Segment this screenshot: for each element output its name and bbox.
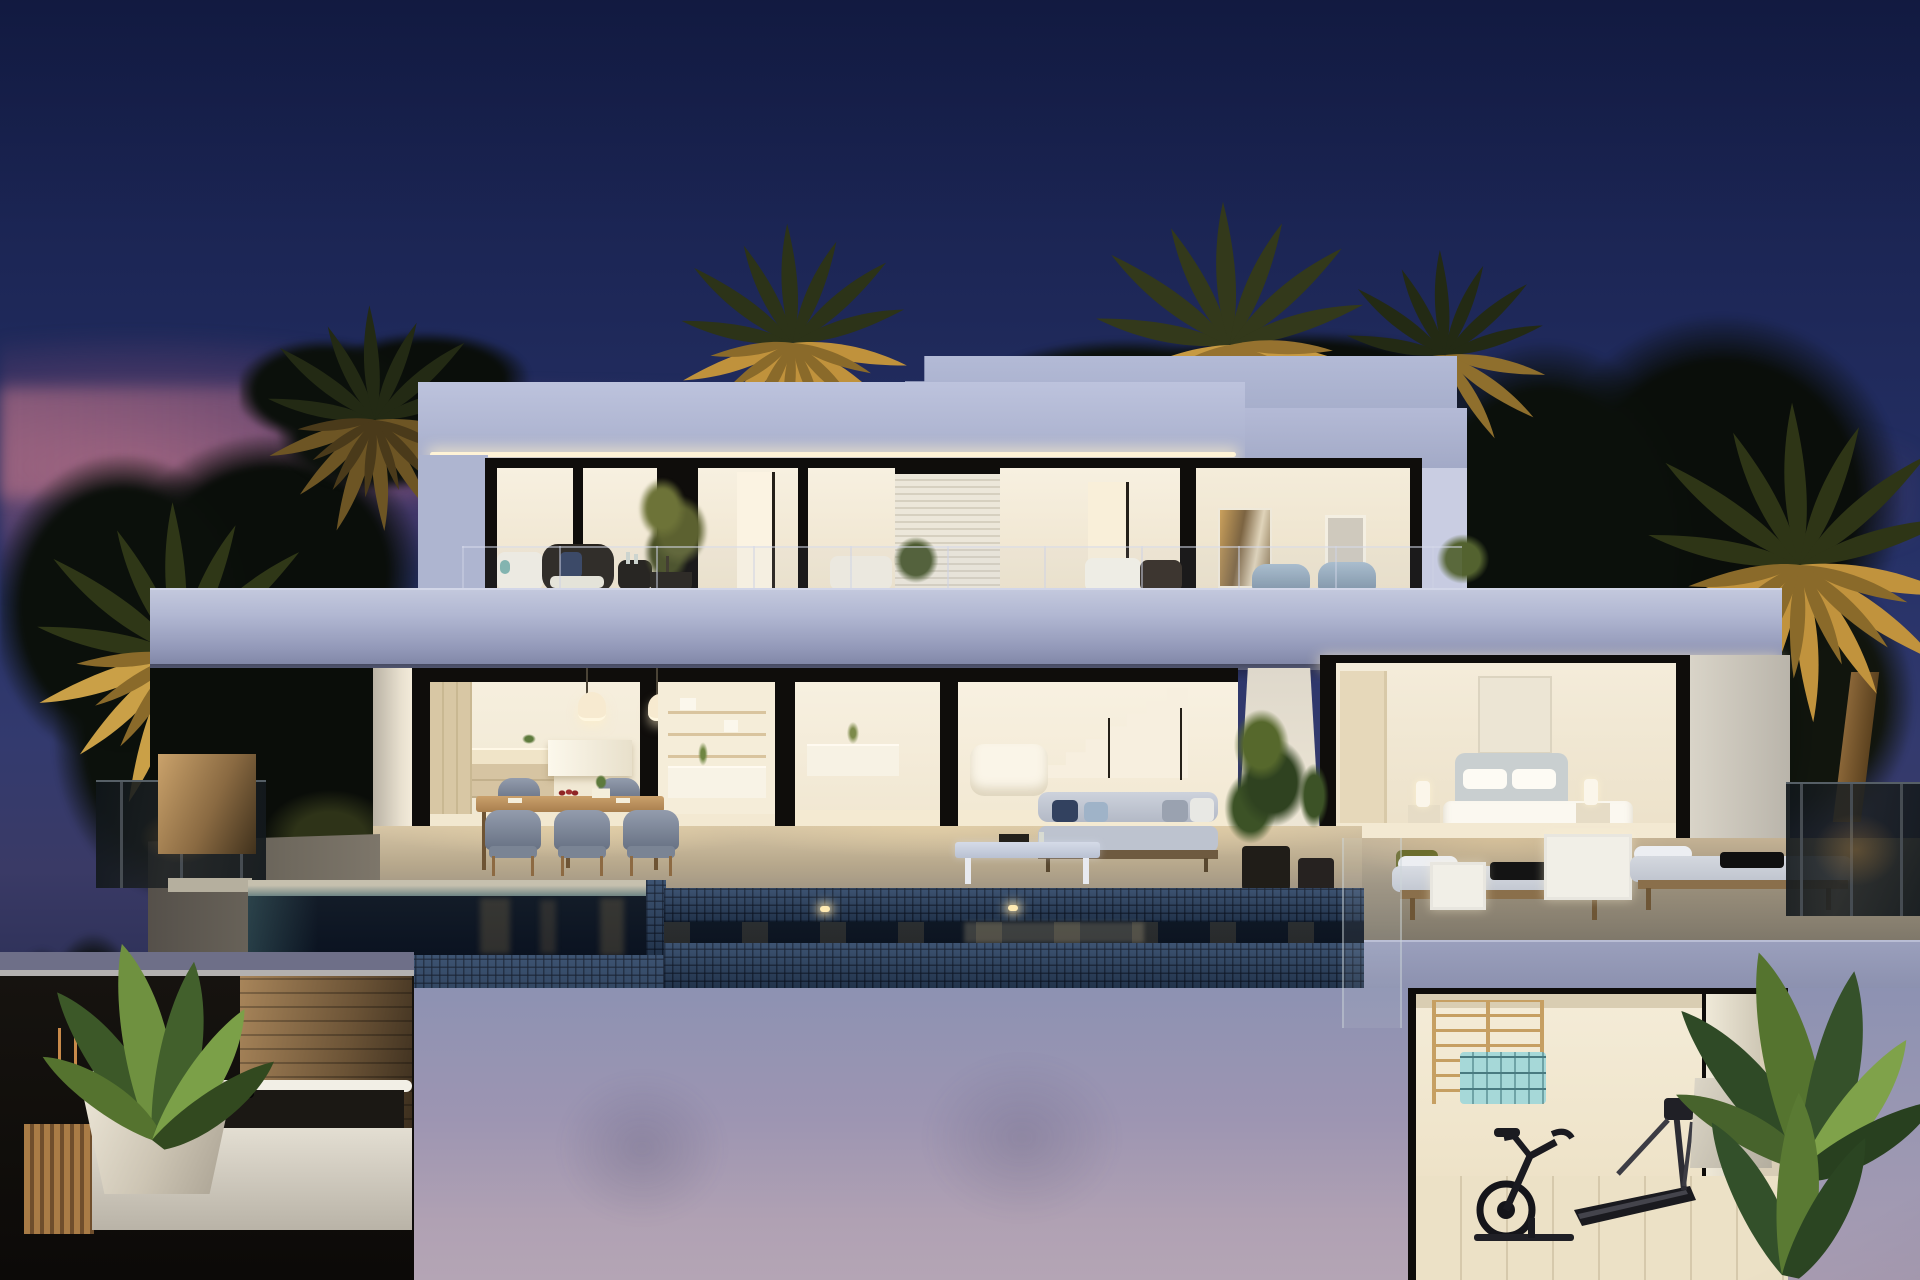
vase [847, 722, 859, 744]
roof-cove-light [430, 452, 1236, 457]
pool-light-1 [820, 906, 830, 912]
pool-step-edge [646, 880, 666, 958]
place-setting-2 [616, 798, 630, 803]
glass-panel-pool-end [1342, 838, 1402, 1028]
pendant-lamp-1 [578, 692, 606, 721]
table-plant-pot [592, 774, 610, 798]
villa-dusk-render [0, 0, 1920, 1280]
interior-white-sofa [970, 744, 1048, 796]
pool-infinity-edge [664, 943, 1364, 990]
fence-post [1800, 784, 1803, 916]
bed-pillow-left [1463, 769, 1507, 789]
rolled-yoga-mats [1460, 1052, 1546, 1104]
table-tray [999, 834, 1029, 842]
bedroom-glazing [1320, 655, 1790, 838]
media-credenza [807, 744, 899, 776]
rolled-towel-dark-2 [1720, 852, 1784, 868]
fence-post [120, 782, 123, 888]
banana-plant-right [1672, 920, 1920, 1280]
pool-water-right [664, 922, 1364, 943]
water-reflection [600, 898, 624, 956]
bedside-lamp-left [1416, 781, 1430, 807]
shelf-box-1 [680, 698, 696, 710]
place-setting-1 [508, 798, 522, 803]
sofa-pillow-navy [1052, 800, 1078, 822]
counter-plant [522, 734, 536, 744]
wall-palm-shadow [532, 1048, 752, 1248]
bedroom-artwork [1478, 676, 1552, 754]
rolled-towel-dark [1490, 862, 1550, 880]
bedroom-side-wall [1690, 655, 1790, 838]
water-reflection-bright [964, 922, 1144, 943]
pool-weir-band [664, 888, 1364, 922]
credenza [668, 766, 766, 798]
dining-chair-2 [554, 810, 610, 876]
coffee-table [955, 842, 1100, 888]
vase-plant [698, 742, 708, 766]
sofa-pillow-blue [1084, 802, 1108, 822]
fence-palm-reflection [1806, 808, 1906, 892]
balcony-glass-railing [462, 546, 1462, 594]
lower-level-wall [412, 988, 1410, 1280]
pool-light-2 [1008, 905, 1018, 911]
sofa-pillow-grey [1162, 800, 1188, 822]
pendant-cord-1 [586, 668, 588, 694]
dining-chair-1 [485, 810, 541, 876]
sofa-pillow-white [1190, 798, 1214, 822]
fruit-bowl [556, 788, 580, 798]
bedroom-corridor [1340, 671, 1387, 831]
table-bottle [1039, 832, 1044, 842]
banana-plant-left [0, 928, 348, 1168]
living-window-left [795, 682, 940, 838]
potted-palm-small [1288, 756, 1340, 856]
water-reflection [540, 900, 556, 954]
shelf-box-2 [724, 720, 738, 732]
stair-railing-rod-1 [1108, 718, 1110, 778]
side-table-white [1544, 834, 1632, 900]
dining-chair-3 [623, 810, 679, 876]
bedroom-window [1336, 663, 1676, 838]
pool-coping-left [168, 878, 252, 892]
kitchen-island [548, 740, 632, 776]
water-reflection [480, 898, 510, 954]
side-table-small [1430, 862, 1486, 910]
wall-palm-shadow-2 [892, 1028, 1152, 1248]
main-roof-fascia [418, 382, 1245, 458]
glass-fence-right [1786, 782, 1920, 916]
bedside-lamp-right [1584, 779, 1598, 805]
bed-pillow-right [1512, 769, 1556, 789]
staircase [1046, 686, 1188, 778]
stone-planter [158, 754, 256, 854]
stair-railing-rod-2 [1180, 708, 1182, 780]
